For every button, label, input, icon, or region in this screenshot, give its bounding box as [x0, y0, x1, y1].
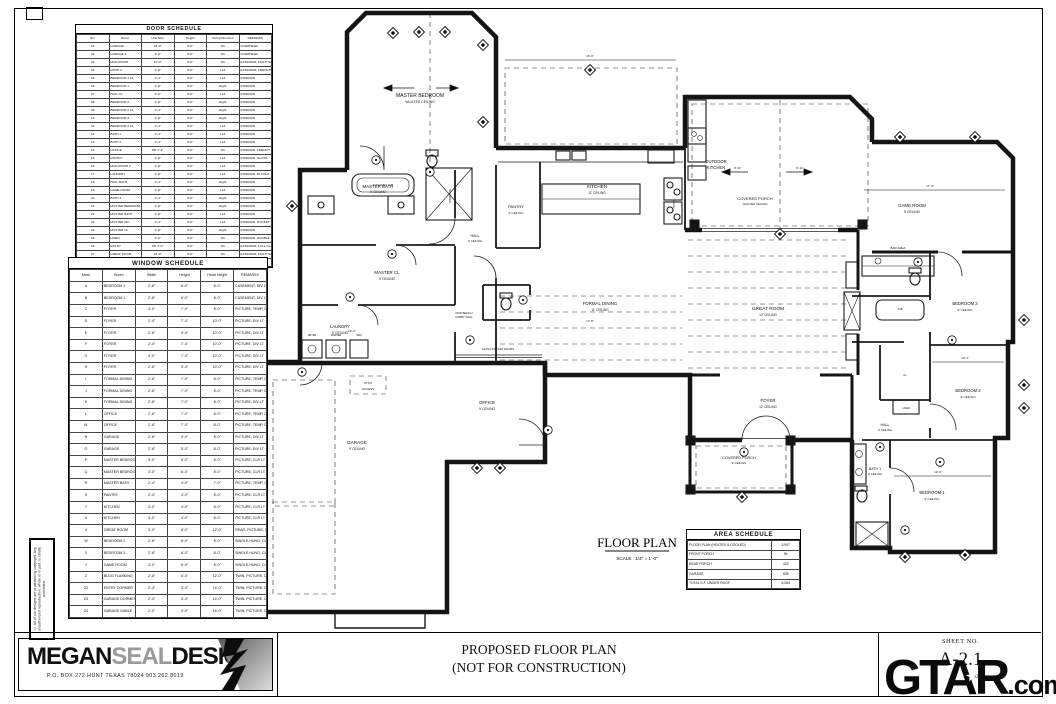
table-row: 24MASTER CL2'-8"8'-0"RightINTERIOR — [77, 227, 272, 235]
copyright-disclaimer: © All of our designs are protected by co… — [29, 538, 55, 640]
table-row: 18HALL BATH2'-4"8'-0"RightINTERIOR — [77, 179, 272, 187]
label-closet: CL — [903, 373, 907, 377]
plan-title: FLOOR PLAN — [597, 535, 677, 550]
watermark-com-text: .com — [1007, 670, 1056, 700]
table-row: 05BEDROOM 1 CL2'-4"8'-0"LeftINTERIOR — [77, 75, 272, 83]
gtar-watermark: GTAR.com ★ — [884, 650, 1056, 704]
table-row: HFOYER2'-8"5'-4"10'-0"PICTURE, DIV LT — [70, 362, 267, 374]
room-label-bath1: BATH 1 — [869, 467, 881, 471]
room-label-master-bedroom: MASTER BEDROOM — [396, 93, 444, 99]
label-shower: SHOWER — [448, 189, 452, 203]
table-row: 23MASTER WC2'-4"8'-0"LeftINTERIOR, POCKE… — [77, 219, 272, 227]
room-label-garage: GARAGE — [347, 440, 367, 445]
area-schedule-table: AREA SCHEDULE FLOOR PLAN (HEATED & COOLE… — [686, 529, 801, 590]
room-label-hall2: HALL — [881, 423, 890, 427]
dim-dining: 17'-8" — [586, 319, 594, 323]
room-note-bath1: 9' CEILING — [868, 472, 882, 476]
table-row: 11BEDROOM 3 CL2'-4"8'-0"LeftINTERIOR — [77, 123, 272, 131]
table-row: OGARAGE2'-8"5'-0"8'-0"PICTURE, DIV LT — [70, 444, 267, 456]
label-glass-pocket-doors: GLASS POCKET DOORS — [482, 347, 515, 351]
table-row: 01GARAGE18'-0"8'-0"NAOVERHEAD — [77, 43, 272, 51]
room-note-hall: 9' CEILING — [468, 239, 482, 243]
room-label-attic: ATTIC — [364, 381, 373, 385]
room-label-porch-front: COVERED PORCH — [722, 456, 756, 460]
table-row: Z2ENTRY DORMER2'-4"3'-4"14'-0"TWIN, PICT… — [70, 583, 267, 595]
room-label-hall: HALL — [471, 234, 480, 238]
window-schedule-grid: MarkRoomWidthHeightHead HeightREMARKSABE… — [69, 269, 267, 618]
room-note-garage: 9' CEILING — [349, 447, 366, 451]
table-row: WBEDROOM 22'-8"6'-0"8'-0"SINGLE HUNG, CL… — [70, 536, 267, 548]
dim-porch-right: 8'-11" — [796, 166, 803, 170]
dim-laundry: 13'-4" — [348, 329, 356, 333]
room-label-pantry: PANTRY — [508, 204, 524, 209]
label-linen: LINEN — [902, 406, 910, 410]
table-row: 17LAUNDRY2'-8"8'-0"LeftINTERIOR, BI-FOLD — [77, 171, 272, 179]
table-row: 19GAME ROOM2'-8"8'-0"LeftINTERIOR — [77, 187, 272, 195]
table-row: 09BEDROOM 2 CL2'-4"8'-0"RightINTERIOR — [77, 107, 272, 115]
room-note-great-room: 12' CEILING — [759, 313, 777, 317]
table-row: PMASTER BEDROOM3'-0"6'-0"8'-0"PICTURE, C… — [70, 455, 267, 467]
room-label-bar-area: BAR AREA — [890, 246, 905, 250]
table-row: 02GARAGE 29'-0"8'-0"NAOVERHEAD — [77, 51, 272, 59]
table-row: GFOYER4'-0"7'-4"10'-0"PICTURE, DIV LT — [70, 351, 267, 363]
room-note-formal-dining: 11' CEILING — [591, 308, 609, 312]
glass-door-lines — [455, 229, 838, 439]
table-row: TOTAL S.F. UNDER ROOF5,264 — [688, 579, 800, 589]
table-row: ZBLDG FLANKING2'-8"5'-0"12'-0"TWIN, PICT… — [70, 571, 267, 583]
table-row: XBEDROOM 32'-8"6'-0"8'-0"SINGLE HUNG, CL… — [70, 548, 267, 560]
dim-game-room: 17'-4" — [926, 184, 934, 188]
label-washer: WASHER — [331, 334, 342, 337]
label-cubby-wall: CUBBY WALL — [455, 315, 473, 319]
room-label-foyer: FOYER — [760, 398, 775, 403]
label-dryer: DRYER — [308, 334, 317, 337]
room-note-master-closet: 9' CEILING — [379, 277, 396, 281]
table-row: 07HALL CL2'-0"8'-0"LeftINTERIOR — [77, 91, 272, 99]
table-row: UKITCHEN3'-0"4'-0"8'-0"PICTURE, CLR LT — [70, 513, 267, 525]
table-row: Z4GARAGE GABLE2'-0"3'-0"16'-0"TWIN, PICT… — [70, 606, 267, 618]
room-note-foyer: 12' CEILING — [759, 405, 777, 409]
door-schedule-table: DOOR SCHEDULE NO.RoomUnit SizeHeightSwin… — [75, 24, 273, 268]
table-row: BBEDROOM 12'-8"6'-0"8'-0"CASEMENT, DIV L… — [70, 293, 267, 305]
table-row: JFORMAL DINING2'-8"7'-0"8'-0"PICTURE, TE… — [70, 386, 267, 398]
table-row: 15PANTRY2'-8"8'-0"LeftINTERIOR, GLASS — [77, 155, 272, 163]
table-header-row: MarkRoomWidthHeightHead HeightREMARKS — [70, 270, 267, 282]
room-label-laundry: LAUNDRY — [330, 324, 350, 329]
logo-box: MEGANSEALDESIGN P.O. BOX 272 HUNT TEXAS … — [18, 638, 273, 691]
ceiling-dashed-lines — [273, 13, 868, 594]
room-label-bedroom3: BEDROOM 3 — [952, 301, 978, 306]
label-sink: SINK — [356, 334, 362, 337]
room-note-master-bath: 9' CEILING — [370, 190, 387, 194]
room-note-bedroom1: 9' CEILING — [924, 497, 940, 501]
door-schedule-title: DOOR SCHEDULE — [76, 25, 272, 34]
room-label-game-room: GAME ROOM — [898, 203, 926, 208]
table-row: 13BATH 22'-4"8'-0"LeftINTERIOR — [77, 139, 272, 147]
room-label-formal-dining: FORMAL DINING — [583, 301, 618, 306]
dimension-labels: 17'-4" 13'-4" 12'-0" 17'-8" 16'-0" 8'-11… — [348, 54, 969, 474]
table-row: FLOOR PLAN (HEATED & COOLED)3,907 — [688, 541, 800, 551]
table-row: 21MASTER BEDROOM2'-8"8'-0"RightINTERIOR — [77, 203, 272, 211]
exterior-walls — [262, 13, 1013, 612]
table-row: GARAGE838 — [688, 569, 800, 579]
table-row: REAR PORCH423 — [688, 560, 800, 570]
table-row: 12BATH 12'-4"8'-0"LeftINTERIOR — [77, 131, 272, 139]
sheet-no-label: SHEET NO. — [879, 638, 1042, 645]
room-note-bedroom2: 9' CEILING — [960, 395, 976, 399]
room-note-outdoor-kitchen: KITCHEN — [707, 165, 725, 170]
table-row: VGREAT ROOM3'-0"8'-0"12'-0"REAR, PICTURE… — [70, 525, 267, 537]
table-row: CFOYER3'-0"7'-0"8'-0"PICTURE, TEMP, DIV … — [70, 304, 267, 316]
table-row: RMASTER BATH2'-4"4'-0"7'-0"PICTURE, TEMP… — [70, 478, 267, 490]
logo-seal: SEAL — [111, 643, 171, 670]
table-row: ABEDROOM 12'-8"6'-0"8'-0"CASEMENT, DIV L… — [70, 281, 267, 293]
room-label-master-closet: MASTER CL — [374, 270, 400, 275]
watermark-star-icon: ★ — [964, 666, 980, 686]
door-schedule-grid: NO.RoomUnit SizeHeightSwing DirectionREM… — [76, 34, 272, 267]
table-row: FRONT PORCH96 — [688, 550, 800, 560]
table-row: MOFFICE2'-8"7'-0"8'-0"PICTURE, TEMP, DIV… — [70, 420, 267, 432]
plan-scale: SCALE : 1/4" = 1'-0" — [616, 556, 658, 561]
room-label-bedroom2: BEDROOM 2 — [955, 388, 981, 393]
title-block-logo-cell: MEGANSEALDESIGN P.O. BOX 272 HUNT TEXAS … — [14, 633, 278, 696]
table-row: 25LINEN2'-0"8'-0"NAINTERIOR, DOUBLE — [77, 235, 272, 243]
dim-patio: 16'-0" — [586, 54, 594, 58]
table-row: TKITCHEN3'-0"4'-0"8'-0"PICTURE, CLR LT — [70, 502, 267, 514]
room-label-office: OFFICE — [479, 400, 495, 405]
room-note-porch-front: 9' CEILING — [732, 461, 747, 465]
window-diamond-markers — [287, 27, 1030, 563]
room-note-master-bedroom: VAULTED CEILING — [405, 100, 435, 104]
label-tub2: TUB — [897, 307, 902, 311]
label-soaking-tub: 6' SOAKING TUB — [373, 183, 394, 187]
table-row: 16MUD ROOM 22'-8"8'-0"LeftINTERIOR — [77, 163, 272, 171]
table-row: FFOYER2'-4"7'-4"10'-0"PICTURE, DIV LT — [70, 339, 267, 351]
room-label-bedroom1: BEDROOM 1 — [919, 490, 945, 495]
window-schedule-title: WINDOW SCHEDULE — [69, 258, 267, 269]
room-label-porch-rear: COVERED PORCH — [737, 196, 772, 201]
room-note-attic: ACCESS — [362, 387, 374, 391]
table-row: 10BEDROOM 32'-8"8'-0"RightINTERIOR — [77, 115, 272, 123]
table-row: Z3GARAGE DORMER2'-4"3'-4"14'-0"TWIN, PIC… — [70, 594, 267, 606]
table-row: 04PATIO 22'-8"8'-0"LeftEXTERIOR, FRENCH — [77, 67, 272, 75]
table-row: 22MASTER BATH2'-8"8'-0"LeftINTERIOR — [77, 211, 272, 219]
room-label-outdoor-kitchen: OUTDOOR — [705, 159, 726, 164]
room-label-great-room: GREAT ROOM — [752, 306, 784, 312]
table-row: 08BEDROOM 22'-8"8'-0"RightINTERIOR — [77, 99, 272, 107]
table-row: KFORMAL DINING2'-8"7'-0"8'-0"PICTURE, DI… — [70, 397, 267, 409]
table-row: IFORMAL DINING2'-8"7'-0"8'-0"PICTURE, TE… — [70, 374, 267, 386]
table-row: 06BEDROOM 12'-8"8'-0"RightINTERIOR — [77, 83, 272, 91]
table-row: 26ENTRYPR 3'-0"8'-0"NAEXTERIOR, FULL GLA… — [77, 243, 272, 251]
dim-bedroom2: 13'-4" — [961, 356, 969, 360]
table-row: SPANTRY2'-4"4'-0"8'-0"PICTURE, CLR LT — [70, 490, 267, 502]
label-range: RANGE — [672, 200, 675, 209]
room-note-porch-rear: VAULTED CEILING — [742, 202, 768, 206]
room-label-kitchen: KITCHEN — [587, 184, 607, 189]
room-note-hall2: 9' CEILING — [878, 428, 892, 432]
table-row: 03MUD ROOM10'-0"8'-0"NAEXTERIOR, MULTI S… — [77, 59, 272, 67]
room-note-office: 9' CEILING — [479, 407, 496, 411]
area-schedule-grid: FLOOR PLAN (HEATED & COOLED)3,907FRONT P… — [687, 540, 800, 589]
room-note-pantry: 9' CEILING — [508, 211, 524, 215]
table-row: EFOYER2'-8"5'-4"10'-0"PICTURE, DIV LT — [70, 328, 267, 340]
window-schedule-table: WINDOW SCHEDULE MarkRoomWidthHeightHead … — [68, 257, 268, 619]
table-row: 14OFFICEPR 2'-4"8'-0"NAINTERIOR, FRENCH … — [77, 147, 272, 155]
dim-porch-left: 8'-11" — [734, 166, 741, 170]
table-row: LOFFICE2'-8"7'-0"8'-0"PICTURE, TEMP, DIV… — [70, 409, 267, 421]
table-row: NGARAGE2'-8"5'-0"8'-0"PICTURE, DIV LT — [70, 432, 267, 444]
sheet-title-line2: (NOT FOR CONSTRUCTION) — [394, 659, 684, 677]
sheet-title-line1: PROPOSED FLOOR PLAN — [394, 641, 684, 659]
table-row: QMASTER BEDROOM3'-0"6'-0"8'-0"PICTURE, C… — [70, 467, 267, 479]
company-address: P.O. BOX 272 HUNT TEXAS 78024 903.262.80… — [47, 673, 184, 679]
watermark-gtar-text: GTAR — [884, 651, 1007, 704]
area-schedule-title: AREA SCHEDULE — [687, 530, 800, 540]
interior-walls — [300, 148, 1008, 548]
logo-zigzag-graphic — [200, 639, 272, 690]
table-row: 20BATH 32'-4"8'-0"RightINTERIOR — [77, 195, 272, 203]
table-header-row: NO.RoomUnit SizeHeightSwing DirectionREM… — [77, 35, 272, 43]
sheet-title: PROPOSED FLOOR PLAN (NOT FOR CONSTRUCTIO… — [394, 641, 684, 677]
table-row: DFOYER2'-4"7'-4"10'-0"PICTURE, DIV LT — [70, 316, 267, 328]
dim-bedroom1: 12'-0" — [934, 470, 942, 474]
table-row: YGAME ROOM3'-0"6'-0"8'-0"SINGLE HUNG, CL… — [70, 560, 267, 572]
drawing-sheet: MASTER BEDROOM VAULTED CEILING MASTER BA… — [0, 0, 1056, 704]
plan-title-group: FLOOR PLAN SCALE : 1/4" = 1'-0" — [597, 535, 677, 561]
logo-megan: MEGAN — [27, 643, 111, 670]
room-note-bedroom3: 9' CEILING — [957, 308, 973, 312]
room-note-game-room: 9' CEILING — [904, 210, 921, 214]
room-note-kitchen: 11' CEILING — [588, 191, 606, 195]
